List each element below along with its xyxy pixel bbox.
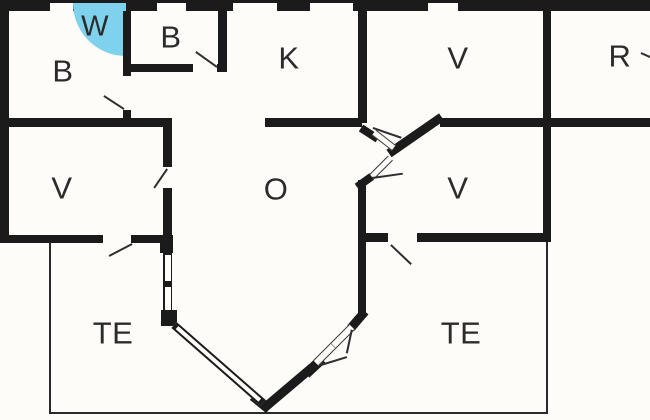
room-label-left-v: V	[51, 173, 72, 204]
wall-living-right	[358, 180, 366, 313]
wall-vleft-bottom-a	[0, 235, 103, 243]
door-swing-bedroom1	[104, 95, 125, 109]
window-top-2	[157, 3, 186, 12]
wall-vright-bottom-a	[358, 233, 388, 242]
window-top-3	[233, 3, 277, 12]
wall-vleft-bottom-b	[131, 235, 162, 243]
door-vleft-terrace	[103, 237, 131, 243]
wall-b2-kitchen-divider	[218, 11, 227, 72]
door-swing-vleft-terrace	[109, 243, 133, 256]
door-bedroom1	[123, 76, 131, 110]
room-label-bedroom-top-second: B	[160, 22, 181, 53]
room-label-wet-cell: W	[81, 13, 109, 42]
window-strip-2	[165, 287, 171, 312]
terrace-bottom-edge-line	[49, 412, 548, 414]
room-label-right-v: V	[447, 173, 468, 204]
room-label-top-right-v: V	[447, 43, 468, 74]
terrace-left-edge-line	[49, 243, 51, 413]
wall-bay-right-diagonal	[263, 364, 315, 410]
window-top-5	[428, 3, 458, 12]
terrace-right-edge-line	[546, 242, 548, 413]
room-label-kitchen: K	[278, 43, 299, 74]
room-label-living-o: O	[264, 174, 289, 205]
room-label-r: R	[609, 41, 632, 72]
room-label-terrace-left: TE	[93, 318, 134, 349]
window-top-1	[50, 3, 73, 12]
floor-plan: B W B K V R V O V TE TE	[0, 0, 650, 420]
wall-vright-bottom-b	[417, 233, 548, 242]
wall-kitchen-v-divider	[358, 11, 367, 123]
wall-hall-bottom	[0, 118, 172, 127]
door-vright-terrace	[388, 235, 417, 242]
door-swing-vright-terrace	[390, 244, 411, 264]
room-label-bedroom-top-left: B	[52, 56, 73, 87]
window-strip-1	[165, 255, 171, 281]
room-label-terrace-right: TE	[441, 318, 482, 349]
door-bay-divider	[331, 343, 336, 348]
wall-v-r-divider	[543, 11, 551, 118]
window-bay-left-diagonal	[171, 322, 265, 406]
window-top-4	[310, 3, 353, 12]
wall-kitchen-bottom	[265, 118, 362, 127]
wall-b2-bottom-left	[127, 64, 193, 72]
door-swing-r-edge	[641, 52, 650, 58]
wall-vleft-right-upper	[163, 118, 172, 167]
wall-vright-right	[543, 118, 551, 242]
